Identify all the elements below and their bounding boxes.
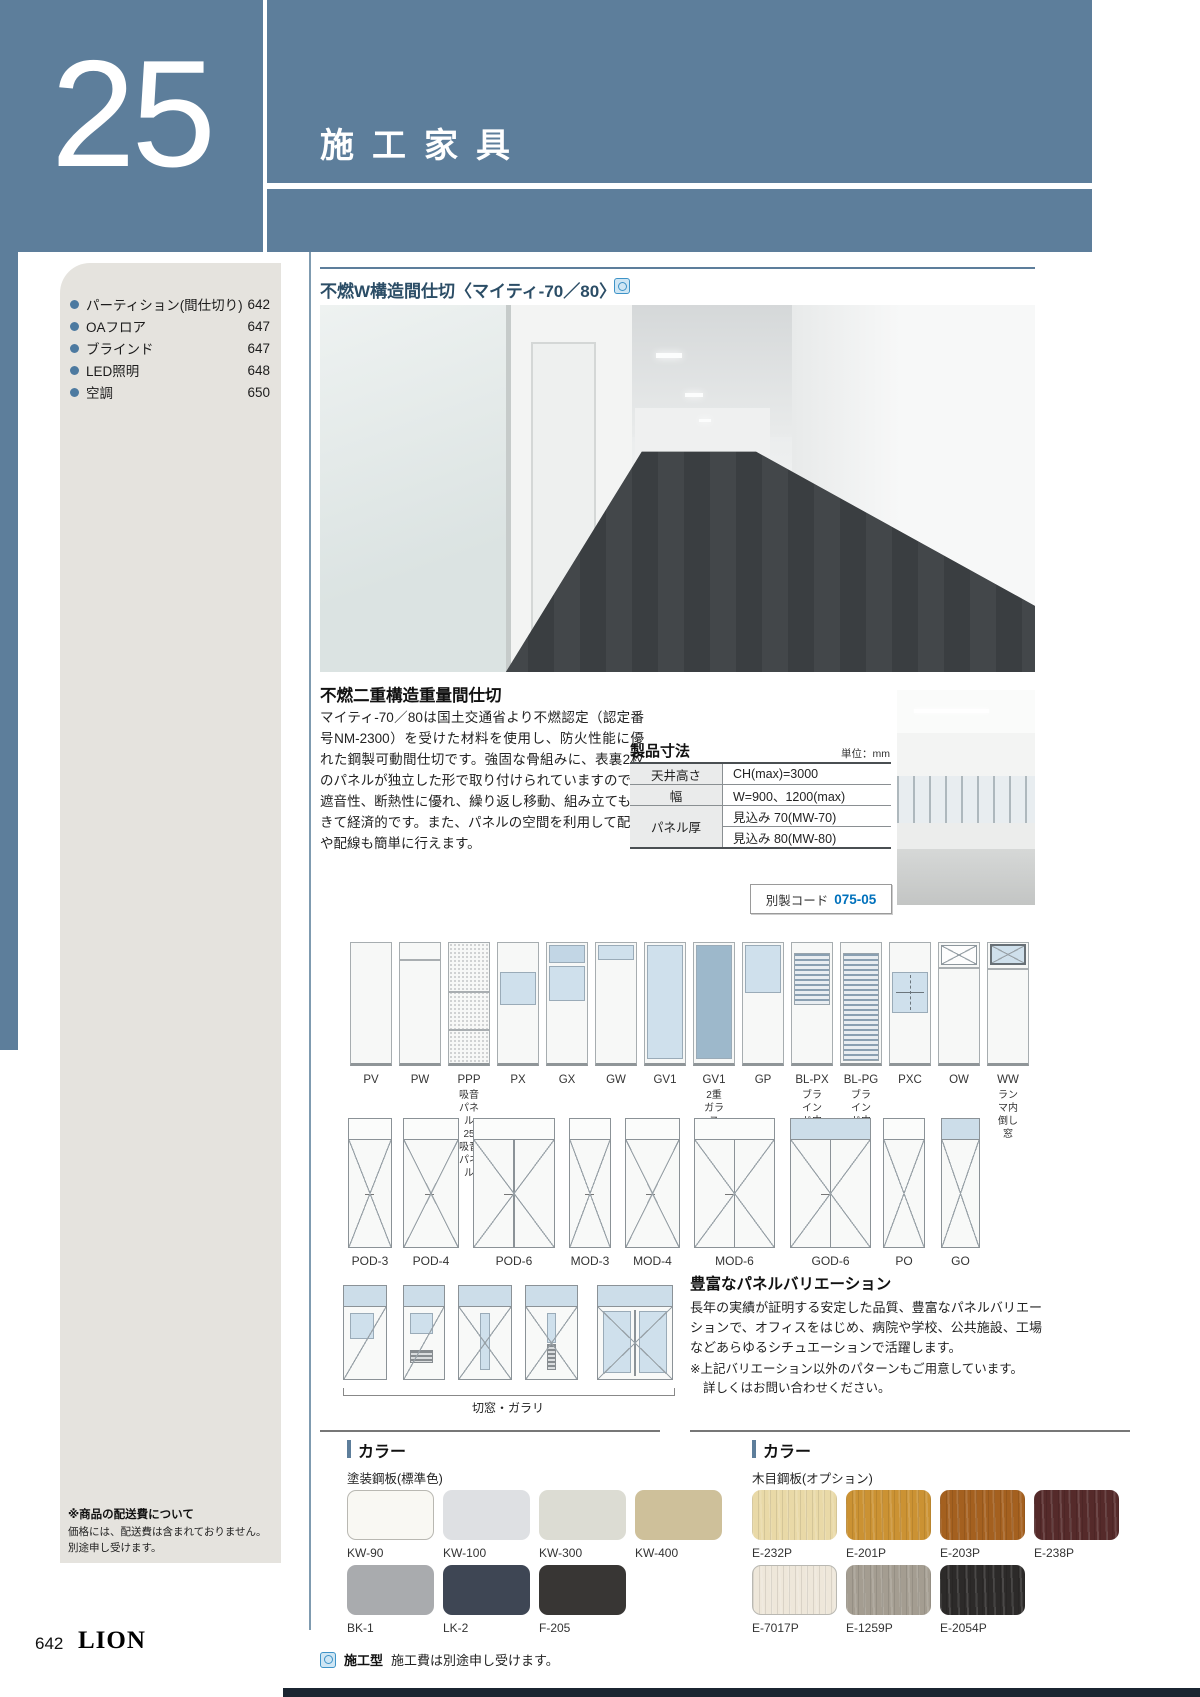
spec-row-value: W=900、1200(max) — [723, 785, 892, 806]
color-heading-bar — [752, 1440, 756, 1458]
panel-figure — [595, 942, 637, 1066]
sidebar-menu: パーティション(間仕切り) 642 OAフロア 647 ブラインド 647 LE… — [70, 293, 270, 403]
panel-figure — [448, 942, 490, 1066]
panel-label: OW — [949, 1074, 969, 1086]
color-label: E-2054P — [940, 1621, 1036, 1635]
left-accent-bar — [0, 252, 18, 1050]
sidebar-item-label: ブラインド — [86, 338, 240, 358]
door-transom — [598, 1286, 672, 1307]
group-bracket — [343, 1388, 675, 1396]
panel-diagram: GV1 — [644, 942, 686, 1066]
panel-figure — [791, 942, 833, 1066]
custom-code-value: 075-05 — [834, 892, 876, 907]
color-label: E-203P — [940, 1546, 1036, 1560]
door-row-1: POD-3 POD-4 POD-6 MOD-3 MOD-4 MOD-6 GOD-… — [320, 1118, 1040, 1278]
color-heading: カラー — [763, 1438, 811, 1462]
color-label: KW-300 — [539, 1546, 635, 1560]
color-chip — [752, 1565, 837, 1615]
color-chip — [635, 1490, 722, 1540]
door-transom — [459, 1286, 511, 1307]
variation-body: 長年の実績が証明する安定した品質、豊富なパネルバリエーションで、オフィスをはじめ… — [690, 1298, 1042, 1358]
color-chip — [443, 1565, 530, 1615]
variation-note-line: ※上記バリエーション以外のパターンもご用意しています。 — [690, 1360, 1042, 1379]
spec-table: 天井高さ CH(max)=3000 幅 W=900、1200(max) パネル厚… — [630, 762, 891, 849]
panel-figure — [546, 942, 588, 1066]
photo-floor — [897, 849, 1035, 905]
panel-diagram: PV — [350, 942, 392, 1066]
door-transom — [404, 1119, 458, 1140]
photo-wall — [897, 823, 1035, 851]
section-heading: 不燃二重構造重量間仕切 — [320, 682, 502, 706]
color-label: KW-90 — [347, 1546, 443, 1560]
panel-diagram: GX — [546, 942, 588, 1066]
construction-note-text: 施工費は別途申し受けます。 — [391, 1650, 559, 1669]
door-figure — [344, 1307, 386, 1379]
section-rule — [320, 267, 1035, 269]
door-diagram: PO — [883, 1118, 925, 1248]
door-figure — [570, 1140, 610, 1247]
sidebar-item-label: パーティション(間仕切り) — [86, 294, 243, 314]
bullet-icon — [70, 388, 79, 397]
bullet-icon — [70, 366, 79, 375]
room-photo — [897, 690, 1035, 905]
color-subheading: 木目鋼板(オプション) — [752, 1468, 873, 1487]
photo-window-band — [897, 776, 1035, 823]
door-transom — [570, 1119, 610, 1140]
sidebar-item-label: 空調 — [86, 382, 240, 402]
photo-ceiling-light — [685, 393, 703, 397]
spec-row-header: パネル厚 — [630, 806, 723, 849]
door-transom — [474, 1119, 554, 1140]
color-chip — [940, 1565, 1025, 1615]
variation-note: ※上記バリエーション以外のパターンもご用意しています。 詳しくはお問い合わせくだ… — [690, 1360, 1042, 1399]
sidebar-item: OAフロア 647 — [70, 315, 270, 337]
color-chip — [539, 1490, 626, 1540]
brand-logo: LION — [78, 1627, 146, 1655]
color-swatch: E-201P — [846, 1490, 942, 1560]
door-figure — [404, 1307, 444, 1379]
door-transom — [791, 1119, 870, 1140]
door-figure — [791, 1140, 870, 1247]
door-label: MOD-6 — [715, 1254, 754, 1268]
header-band: 施工家具 — [267, 0, 1092, 252]
color-label: E-201P — [846, 1546, 942, 1560]
door-transom — [349, 1119, 391, 1140]
panel-label: WW — [997, 1074, 1019, 1086]
door-figure — [349, 1140, 391, 1247]
panel-diagram: OW — [938, 942, 980, 1066]
color-label: LK-2 — [443, 1621, 539, 1635]
spec-row-value: CH(max)=3000 — [723, 763, 892, 785]
spec-row-header: 天井高さ — [630, 763, 723, 785]
construction-type-icon — [320, 1652, 336, 1668]
color-chip — [347, 1565, 434, 1615]
panel-label: GP — [755, 1074, 772, 1086]
door-label: PO — [895, 1254, 912, 1268]
door-diagram — [525, 1285, 578, 1380]
photo-ceiling-light — [699, 419, 711, 422]
color-swatch: LK-2 — [443, 1565, 539, 1635]
chapter-number: 25 — [0, 38, 263, 190]
spec-row-header: 幅 — [630, 785, 723, 806]
door-transom — [884, 1119, 924, 1140]
door-figure — [404, 1140, 458, 1247]
panel-figure — [497, 942, 539, 1066]
photo-ceiling-light — [656, 353, 682, 358]
sidebar-item-page: 650 — [240, 385, 270, 400]
door-figure — [884, 1140, 924, 1247]
color-label: E-232P — [752, 1546, 848, 1560]
header-divider — [267, 183, 1092, 189]
color-label: E-238P — [1034, 1546, 1130, 1560]
bullet-icon — [70, 322, 79, 331]
color-chip — [1034, 1490, 1119, 1540]
panel-label: PX — [510, 1074, 525, 1086]
panel-diagram: PX — [497, 942, 539, 1066]
panel-label: BL-PG — [844, 1074, 879, 1086]
panel-diagram: WW ランマ内倒し窓 — [987, 942, 1029, 1066]
color-chip — [846, 1490, 931, 1540]
custom-code-box: 別製コード 075-05 — [750, 884, 892, 914]
sidebar-item-label: OAフロア — [86, 316, 240, 336]
color-swatch: KW-90 — [347, 1490, 443, 1560]
page-number: 642 — [35, 1634, 63, 1654]
panel-figure — [987, 942, 1029, 1066]
panel-label: PXC — [898, 1074, 922, 1086]
page-title: 施工家具 — [320, 118, 528, 167]
panel-diagram: PXC — [889, 942, 931, 1066]
sidebar-item-label: LED照明 — [86, 360, 240, 380]
color-swatch: KW-400 — [635, 1490, 731, 1560]
spec-unit: 単位：mm — [790, 746, 890, 761]
color-swatch: E-232P — [752, 1490, 848, 1560]
panel-label: PV — [363, 1074, 378, 1086]
door-diagram: MOD-3 — [569, 1118, 611, 1248]
spec-title: 製品寸法 — [630, 740, 690, 761]
door-transom — [526, 1286, 577, 1307]
product-description: マイティ-70／80は国土交通省より不燃認定（認定番号NM-2300）を受けた材… — [320, 707, 644, 854]
door-diagram — [403, 1285, 445, 1380]
sidebar-item: ブラインド 647 — [70, 337, 270, 359]
construction-note-label: 施工型 — [344, 1650, 383, 1669]
sidebar-item-page: 647 — [240, 341, 270, 356]
door-label: GOD-6 — [811, 1254, 849, 1268]
door-label: POD-3 — [352, 1254, 389, 1268]
door-diagram — [458, 1285, 512, 1380]
color-label: E-1259P — [846, 1621, 942, 1635]
color-divider — [320, 1430, 660, 1432]
color-swatch: KW-300 — [539, 1490, 635, 1560]
color-label: F-205 — [539, 1621, 635, 1635]
panel-figure — [938, 942, 980, 1066]
panel-label: GV1 — [653, 1074, 676, 1086]
door-diagram: MOD-6 — [694, 1118, 775, 1248]
color-divider — [690, 1430, 1130, 1432]
variation-note-line: 詳しくはお問い合わせください。 — [690, 1379, 1042, 1398]
panel-diagram: GV1 2重ガラス — [693, 942, 735, 1066]
color-swatch: BK-1 — [347, 1565, 443, 1635]
door-label: POD-6 — [496, 1254, 533, 1268]
door-diagram — [597, 1285, 673, 1380]
swatch-grid-right: E-232P E-201P E-203P E-238P E-7017P E-12… — [752, 1490, 1142, 1697]
sidebar-item-page: 647 — [240, 319, 270, 334]
chapter-block: 25 — [0, 0, 263, 252]
door-transom — [626, 1119, 679, 1140]
door-figure — [942, 1140, 979, 1247]
color-swatch: KW-100 — [443, 1490, 539, 1560]
door-diagram: MOD-4 — [625, 1118, 680, 1248]
panel-label: GV1 — [702, 1074, 725, 1086]
color-swatch: E-238P — [1034, 1490, 1130, 1560]
panel-diagram: GW — [595, 942, 637, 1066]
photo-light — [914, 709, 990, 713]
panel-label: GX — [559, 1074, 576, 1086]
door-label: MOD-4 — [633, 1254, 672, 1268]
catalog-page: 25 施工家具 パーティション(間仕切り) 642 OAフロア 647 ブライン… — [0, 0, 1200, 1697]
panel-diagram: BL-PG ブラインド内蔵 — [840, 942, 882, 1066]
color-swatch: E-1259P — [846, 1565, 942, 1635]
color-swatch: E-2054P — [940, 1565, 1036, 1635]
sidebar-item: LED照明 648 — [70, 359, 270, 381]
spec-row-value: 見込み 80(MW-80) — [723, 827, 892, 849]
panel-label: PW — [411, 1074, 430, 1086]
color-chip — [347, 1490, 434, 1540]
spec-row-value: 見込み 70(MW-70) — [723, 806, 892, 827]
color-label: E-7017P — [752, 1621, 848, 1635]
color-swatch: F-205 — [539, 1565, 635, 1635]
panel-figure — [889, 942, 931, 1066]
panel-row: PV PW PPP 吸音パネル 25吸音パネル PX GX GW GV1 GV1… — [350, 942, 1050, 1117]
sidebar-item-page: 648 — [240, 363, 270, 378]
panel-figure — [693, 942, 735, 1066]
color-label: BK-1 — [347, 1621, 443, 1635]
sidebar: パーティション(間仕切り) 642 OAフロア 647 ブラインド 647 LE… — [60, 263, 281, 1563]
color-chip — [846, 1565, 931, 1615]
door-label: GO — [951, 1254, 970, 1268]
color-heading-bar — [347, 1440, 351, 1458]
panel-figure — [644, 942, 686, 1066]
door-figure — [626, 1140, 679, 1247]
shipping-note-title: ※商品の配送費について — [68, 1506, 273, 1522]
panel-figure — [742, 942, 784, 1066]
sidebar-item-page: 642 — [243, 297, 270, 312]
door-figure — [695, 1140, 774, 1247]
color-swatch: E-7017P — [752, 1565, 848, 1635]
construction-type-icon — [614, 278, 630, 294]
color-chip — [539, 1565, 626, 1615]
door-figure — [526, 1307, 577, 1379]
photo-glass-wall — [320, 305, 511, 672]
door-label: POD-4 — [413, 1254, 450, 1268]
panel-label: PPP — [457, 1074, 480, 1086]
panel-diagram: PW — [399, 942, 441, 1066]
bullet-icon — [70, 344, 79, 353]
page-edge-bar — [283, 1688, 1200, 1697]
door-diagram: GOD-6 — [790, 1118, 871, 1248]
door-diagram: GO — [941, 1118, 980, 1248]
shipping-note-line: 別途申し受けます。 — [68, 1541, 273, 1557]
door-transom — [695, 1119, 774, 1140]
panel-figure — [350, 942, 392, 1066]
color-chip — [940, 1490, 1025, 1540]
shipping-note: ※商品の配送費について 価格には、配送費は含まれておりません。 別途申し受けます… — [68, 1506, 273, 1557]
product-title: 不燃W構造間仕切〈マイティ-70／80〉 — [320, 277, 616, 302]
panel-diagram: GP — [742, 942, 784, 1066]
shipping-note-line: 価格には、配送費は含まれておりません。 — [68, 1525, 273, 1541]
color-label: KW-400 — [635, 1546, 731, 1560]
door-transom — [344, 1286, 386, 1307]
color-subheading: 塗装鋼板(標準色) — [347, 1468, 443, 1487]
door-figure — [474, 1140, 554, 1247]
color-label: KW-100 — [443, 1546, 539, 1560]
door-figure — [598, 1307, 672, 1379]
corridor-photo — [320, 305, 1035, 672]
panel-label: GW — [606, 1074, 626, 1086]
color-chip — [752, 1490, 837, 1540]
color-chip — [443, 1490, 530, 1540]
column-rule — [309, 252, 311, 1630]
sidebar-item: パーティション(間仕切り) 642 — [70, 293, 270, 315]
color-heading: カラー — [358, 1438, 406, 1462]
door-diagram: POD-4 — [403, 1118, 459, 1248]
panel-diagram: PPP 吸音パネル 25吸音パネル — [448, 942, 490, 1066]
group-caption: 切窓・ガラリ — [343, 1399, 673, 1416]
panel-label: BL-PX — [795, 1074, 828, 1086]
variation-heading: 豊富なパネルバリエーション — [690, 1272, 891, 1294]
door-transom — [942, 1119, 979, 1140]
panel-diagram: BL-PX ブラインド内蔵 — [791, 942, 833, 1066]
door-diagram: POD-6 — [473, 1118, 555, 1248]
bullet-icon — [70, 300, 79, 309]
panel-figure — [399, 942, 441, 1066]
door-figure — [459, 1307, 511, 1379]
sidebar-item: 空調 650 — [70, 381, 270, 403]
door-diagram: POD-3 — [348, 1118, 392, 1248]
color-swatch: E-203P — [940, 1490, 1036, 1560]
door-transom — [404, 1286, 444, 1307]
panel-figure — [840, 942, 882, 1066]
door-diagram — [343, 1285, 387, 1380]
construction-note: 施工型 施工費は別途申し受けます。 — [320, 1650, 559, 1669]
door-label: MOD-3 — [571, 1254, 610, 1268]
custom-code-label: 別製コード — [766, 890, 829, 909]
